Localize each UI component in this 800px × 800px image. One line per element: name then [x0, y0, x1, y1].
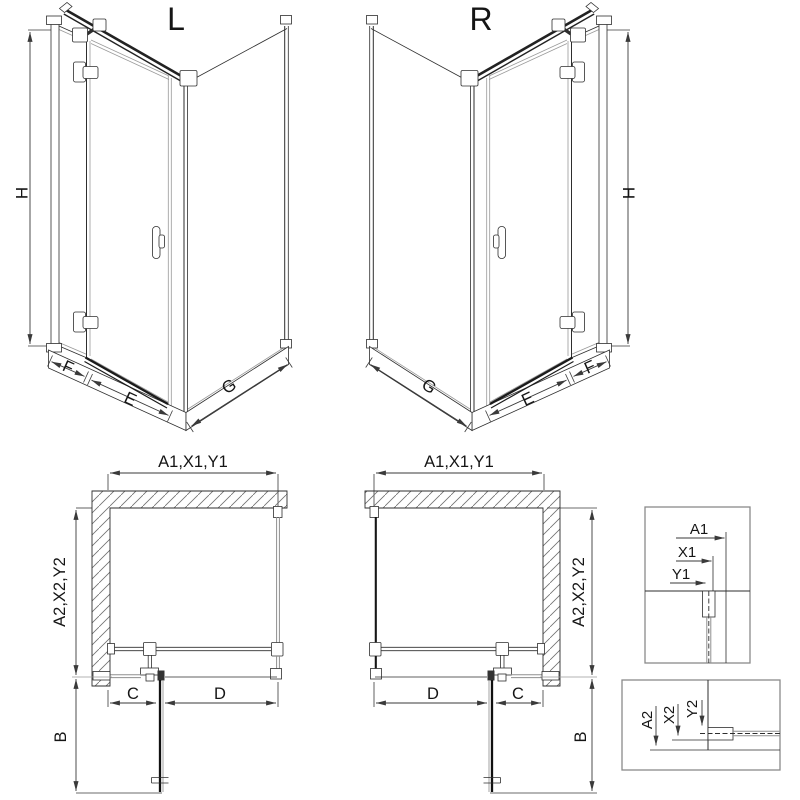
iso-right-title: R — [469, 1, 492, 37]
detail-bottom-dim-a2-label: A2 — [639, 711, 656, 729]
plan-left-dim-c-label: C — [127, 685, 139, 703]
plan-left-dim-top-label: A1,X1,Y1 — [158, 453, 228, 471]
plan-view-left — [72, 473, 287, 793]
shower-enclosure-technical-drawing: L H F E G R H F E G — [0, 0, 800, 800]
detail-top-dim-a1-label: A1 — [690, 521, 708, 538]
iso-left-dim-h-label: H — [13, 187, 32, 199]
detail-top-dim-x1-label: X1 — [678, 544, 696, 561]
plan-right-dim-c-label: C — [512, 685, 524, 703]
drawing-svg: L H F E G R H F E G — [0, 0, 800, 800]
plan-right-dim-b-label: B — [572, 731, 590, 742]
plan-right-dim-top-label: A1,X1,Y1 — [424, 453, 494, 471]
plan-right-dim-side-label: A2,X2,Y2 — [570, 557, 588, 627]
plan-view-right — [365, 473, 597, 793]
plan-right-dim-d-label: D — [427, 685, 439, 703]
iso-left-title: L — [167, 1, 185, 37]
plan-left-dim-side-label: A2,X2,Y2 — [51, 557, 69, 627]
iso-right-dim-h-label: H — [620, 187, 639, 199]
plan-left-dim-d-label: D — [214, 685, 226, 703]
detail-top-dim-y1-label: Y1 — [672, 566, 690, 583]
detail-bottom-dim-y2-label: Y2 — [684, 700, 701, 718]
detail-bottom-dim-x2-label: X2 — [661, 706, 678, 724]
plan-left-dim-b-label: B — [52, 731, 70, 742]
